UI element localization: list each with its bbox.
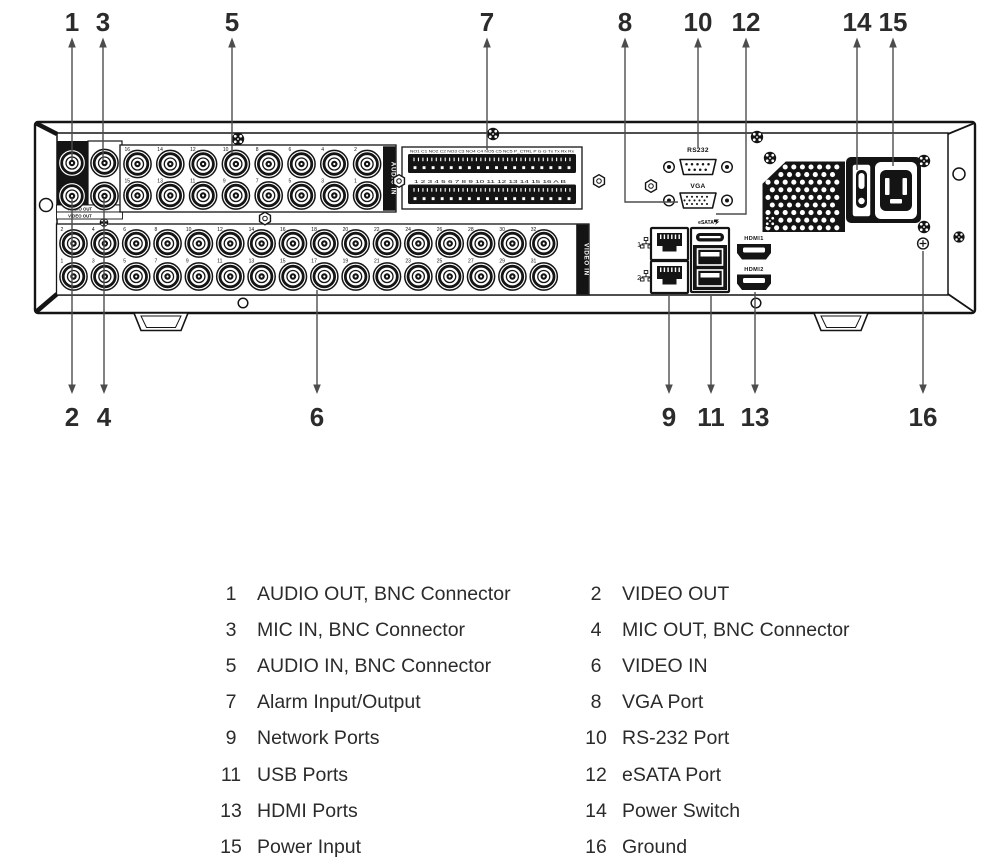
bnc-number: 2 xyxy=(61,227,64,233)
callout-number: 7 xyxy=(480,7,494,37)
bnc-number: 2 xyxy=(354,147,357,153)
bnc-number: 14 xyxy=(157,147,163,153)
hex-nut-icon xyxy=(394,175,405,188)
screw-icon xyxy=(487,128,499,140)
bnc-number: 31 xyxy=(531,259,537,265)
bnc-connector xyxy=(321,182,348,209)
bnc-connector xyxy=(190,182,217,209)
bnc-number: 15 xyxy=(280,259,286,265)
legend-item-label: AUDIO OUT, BNC Connector xyxy=(244,583,511,606)
bnc-number: 8 xyxy=(155,227,158,233)
legend-item: 7Alarm Input/Output xyxy=(218,685,511,721)
bnc-connector xyxy=(530,263,557,290)
bnc-connector xyxy=(436,230,463,257)
bnc-connector xyxy=(405,230,432,257)
video-in-strip-label: VIDEO IN xyxy=(583,243,590,276)
bnc-number: 3 xyxy=(92,259,95,265)
legend-item: 12eSATA Port xyxy=(583,757,850,793)
legend-item-number: 12 xyxy=(583,764,609,787)
legend-item-label: Alarm Input/Output xyxy=(244,691,421,714)
rs232-label: RS232 xyxy=(687,147,709,154)
bnc-connector xyxy=(248,263,275,290)
alarm-terminal-labels-row2: 1 2 3 4 5 6 7 8 9 10 11 12 13 14 15 16 A… xyxy=(414,179,566,184)
legend-item-label: VIDEO IN xyxy=(609,655,708,678)
arrowhead-icon xyxy=(665,385,673,395)
bnc-connector xyxy=(354,150,381,177)
bnc-connector xyxy=(373,230,400,257)
bnc-connector xyxy=(60,263,87,290)
callout-number: 12 xyxy=(732,7,761,37)
esata-port xyxy=(696,233,724,242)
bnc-connector xyxy=(217,230,244,257)
bnc-connector xyxy=(185,263,212,290)
legend-item-label: MIC OUT, BNC Connector xyxy=(609,619,850,642)
legend-item-label: Network Ports xyxy=(244,727,379,750)
bnc-connector xyxy=(342,263,369,290)
legend-item: 11USB Ports xyxy=(218,757,511,793)
legend-item-number: 15 xyxy=(218,836,244,859)
power-inlet xyxy=(875,162,917,219)
bnc-number: 6 xyxy=(123,227,126,233)
bnc-connector xyxy=(222,150,249,177)
bnc-number: 5 xyxy=(289,179,292,185)
bnc-connector xyxy=(279,230,306,257)
callout-number: 11 xyxy=(697,402,725,432)
bnc-connector xyxy=(255,150,282,177)
bnc-connector xyxy=(222,182,249,209)
callout-number: 1 xyxy=(65,7,79,37)
bnc-connector xyxy=(124,150,151,177)
callout-11: 11 xyxy=(697,294,725,432)
legend-item-number: 4 xyxy=(583,619,609,642)
chassis-foot-right xyxy=(814,313,868,331)
bnc-number: 29 xyxy=(499,259,505,265)
legend-item: 1AUDIO OUT, BNC Connector xyxy=(218,576,511,612)
bnc-connector xyxy=(405,263,432,290)
bnc-connector xyxy=(91,230,118,257)
hdmi-port-2 xyxy=(737,275,771,291)
legend-item: 13HDMI Ports xyxy=(218,793,511,829)
legend-column-right: 2VIDEO OUT4MIC OUT, BNC Connector6VIDEO … xyxy=(583,576,850,865)
callout-number: 10 xyxy=(684,7,713,37)
bnc-connector xyxy=(190,150,217,177)
legend-item: 8VGA Port xyxy=(583,685,850,721)
legend-column-left: 1AUDIO OUT, BNC Connector3MIC IN, BNC Co… xyxy=(218,576,511,865)
mounting-hole xyxy=(40,199,53,212)
arrowhead-icon xyxy=(694,38,702,48)
legend-item-number: 14 xyxy=(583,800,609,823)
bnc-connector xyxy=(154,263,181,290)
bnc-number: 16 xyxy=(125,147,131,153)
bnc-connector xyxy=(157,182,184,209)
bnc-connector xyxy=(255,182,282,209)
callout-number: 5 xyxy=(225,7,239,37)
screw-icon xyxy=(918,221,930,233)
bnc-number: 21 xyxy=(374,259,380,265)
hdmi-port-1 xyxy=(737,244,771,260)
arrowhead-icon xyxy=(99,38,107,48)
bnc-number: 5 xyxy=(123,259,126,265)
rj45-port-1 xyxy=(651,228,688,260)
legend-item-label: Ground xyxy=(609,836,687,859)
arrowhead-icon xyxy=(889,38,897,48)
power-switch xyxy=(852,164,871,217)
legend-item: 10RS-232 Port xyxy=(583,721,850,757)
bnc-connector xyxy=(288,150,315,177)
callout-number: 2 xyxy=(65,402,79,432)
hex-nut-icon xyxy=(260,212,271,225)
bnc-number: 10 xyxy=(223,147,229,153)
screw-icon xyxy=(751,131,763,143)
legend-item: 2VIDEO OUT xyxy=(583,576,850,612)
bnc-connector xyxy=(321,150,348,177)
bnc-number: 7 xyxy=(155,259,158,265)
legend-item-number: 5 xyxy=(218,655,244,678)
bnc-number: 6 xyxy=(289,147,292,153)
bnc-number: 7 xyxy=(256,179,259,185)
mounting-hole xyxy=(953,168,965,180)
legend-item-number: 1 xyxy=(218,583,244,606)
ground-screw xyxy=(918,238,929,249)
legend-item-label: VGA Port xyxy=(609,691,703,714)
bnc-connector xyxy=(311,230,338,257)
vga-label: VGA xyxy=(690,183,705,190)
bnc-connector xyxy=(467,230,494,257)
bnc-connector xyxy=(157,150,184,177)
arrowhead-icon xyxy=(68,385,76,395)
callout-number: 6 xyxy=(310,402,324,432)
screw-icon xyxy=(764,152,776,164)
legend-item-label: HDMI Ports xyxy=(244,800,358,823)
bnc-connector xyxy=(248,230,275,257)
arrowhead-icon xyxy=(68,38,76,48)
alarm-io-block: NO1 C1 NO2 C2 NO3 C3 NO4 C4 NO5 C5 NC5 P… xyxy=(402,147,582,209)
arrowhead-icon xyxy=(621,38,629,48)
chassis-foot-left xyxy=(134,313,188,331)
legend-item: 16Ground xyxy=(583,829,850,865)
callout-number: 3 xyxy=(96,7,110,37)
legend-item: 5AUDIO IN, BNC Connector xyxy=(218,648,511,684)
bnc-number: 15 xyxy=(125,179,131,185)
bnc-connector xyxy=(124,182,151,209)
legend-item-number: 2 xyxy=(583,583,609,606)
bnc-number: 9 xyxy=(186,259,189,265)
legend-item-number: 9 xyxy=(218,727,244,750)
hex-nut-icon xyxy=(594,175,605,188)
legend-item-label: AUDIO IN, BNC Connector xyxy=(244,655,491,678)
bnc-connector xyxy=(311,263,338,290)
legend-item-number: 3 xyxy=(218,619,244,642)
bnc-connector xyxy=(123,263,150,290)
bnc-connector xyxy=(499,230,526,257)
bnc-connector xyxy=(530,230,557,257)
legend-item-number: 13 xyxy=(218,800,244,823)
bnc-connector xyxy=(288,182,315,209)
arrowhead-icon xyxy=(919,385,927,395)
bnc-number: 12 xyxy=(190,147,196,153)
bnc-number: 25 xyxy=(437,259,443,265)
legend-item-label: USB Ports xyxy=(244,764,348,787)
bnc-number: 27 xyxy=(468,259,474,265)
legend-item-label: RS-232 Port xyxy=(609,727,729,750)
legend-item: 15Power Input xyxy=(218,829,511,865)
bnc-connector xyxy=(154,230,181,257)
legend-item-number: 10 xyxy=(583,727,609,750)
legend-item-number: 6 xyxy=(583,655,609,678)
bnc-connector xyxy=(499,263,526,290)
arrowhead-icon xyxy=(228,38,236,48)
legend-item: 9Network Ports xyxy=(218,721,511,757)
bnc-connector xyxy=(467,263,494,290)
rear-panel-figure: AUDIO OUT VIDEO OUT AUDIO IN VIDEO IN 16… xyxy=(0,0,1000,865)
callout-number: 16 xyxy=(909,402,938,432)
screw-icon xyxy=(232,133,244,145)
legend-item-number: 7 xyxy=(218,691,244,714)
hex-nut-icon xyxy=(646,180,657,193)
legend-item: 6VIDEO IN xyxy=(583,648,850,684)
bnc-number: 1 xyxy=(61,259,64,265)
bnc-number: 9 xyxy=(223,179,226,185)
arrowhead-icon xyxy=(100,385,108,395)
legend-item: 4MIC OUT, BNC Connector xyxy=(583,612,850,648)
legend-item-label: eSATA Port xyxy=(609,764,721,787)
legend-item-number: 8 xyxy=(583,691,609,714)
bnc-connector xyxy=(217,263,244,290)
legend-item-label: VIDEO OUT xyxy=(609,583,729,606)
arrowhead-icon xyxy=(707,385,715,395)
arrowhead-icon xyxy=(742,38,750,48)
legend-item-label: Power Switch xyxy=(609,800,740,823)
bnc-number: 11 xyxy=(217,259,222,265)
legend-item-label: Power Input xyxy=(244,836,361,859)
alarm-terminal-labels-row1: NO1 C1 NO2 C2 NO3 C3 NO4 C4 NO5 C5 NC5 P… xyxy=(410,150,574,154)
bnc-number: 19 xyxy=(343,259,349,265)
callout-number: 9 xyxy=(662,402,676,432)
screw-icon xyxy=(918,155,930,167)
bnc-connector xyxy=(91,149,118,176)
mounting-hole xyxy=(751,298,761,308)
bnc-number: 3 xyxy=(321,179,324,185)
legend-item-number: 16 xyxy=(583,836,609,859)
bnc-number: 1 xyxy=(354,179,357,185)
bnc-connector xyxy=(91,263,118,290)
bnc-number: 4 xyxy=(321,147,324,153)
callout-9: 9 xyxy=(662,294,676,432)
arrowhead-icon xyxy=(483,38,491,48)
callout-number: 4 xyxy=(97,402,112,432)
screw-icon xyxy=(764,215,776,227)
esata-label: eSATA xyxy=(698,220,714,226)
bnc-number: 23 xyxy=(405,259,411,265)
legend-item: 3MIC IN, BNC Connector xyxy=(218,612,511,648)
bnc-connector xyxy=(354,182,381,209)
bnc-connector xyxy=(342,230,369,257)
bnc-connector xyxy=(436,263,463,290)
bnc-number: 4 xyxy=(92,227,95,233)
legend-item-label: MIC IN, BNC Connector xyxy=(244,619,465,642)
bnc-connector xyxy=(373,263,400,290)
arrowhead-icon xyxy=(853,38,861,48)
bnc-number: 17 xyxy=(311,259,317,265)
hdmi1-label: HDMI1 xyxy=(744,236,763,242)
legend-item: 14Power Switch xyxy=(583,793,850,829)
arrowhead-icon xyxy=(751,385,759,395)
callout-number: 13 xyxy=(741,402,770,432)
bnc-connector xyxy=(123,230,150,257)
bnc-number: 13 xyxy=(157,179,163,185)
mounting-hole xyxy=(238,298,248,308)
rear-panel-diagram: AUDIO OUT VIDEO OUT AUDIO IN VIDEO IN 16… xyxy=(0,0,1000,560)
bnc-number: 11 xyxy=(190,179,195,185)
arrowhead-icon xyxy=(313,385,321,395)
hdmi2-label: HDMI2 xyxy=(744,267,763,273)
bnc-number: 13 xyxy=(249,259,255,265)
screw-icon xyxy=(953,231,964,242)
bnc-connector xyxy=(279,263,306,290)
bnc-number: 8 xyxy=(256,147,259,153)
callout-number: 15 xyxy=(879,7,908,37)
callout-number: 8 xyxy=(618,7,632,37)
esata-usb-ports: eSATA xyxy=(691,220,729,293)
bnc-connector xyxy=(185,230,212,257)
rj45-port-2 xyxy=(651,261,688,293)
bnc-connector xyxy=(60,230,87,257)
callout-number: 14 xyxy=(843,7,872,37)
legend-item-number: 11 xyxy=(218,764,244,787)
